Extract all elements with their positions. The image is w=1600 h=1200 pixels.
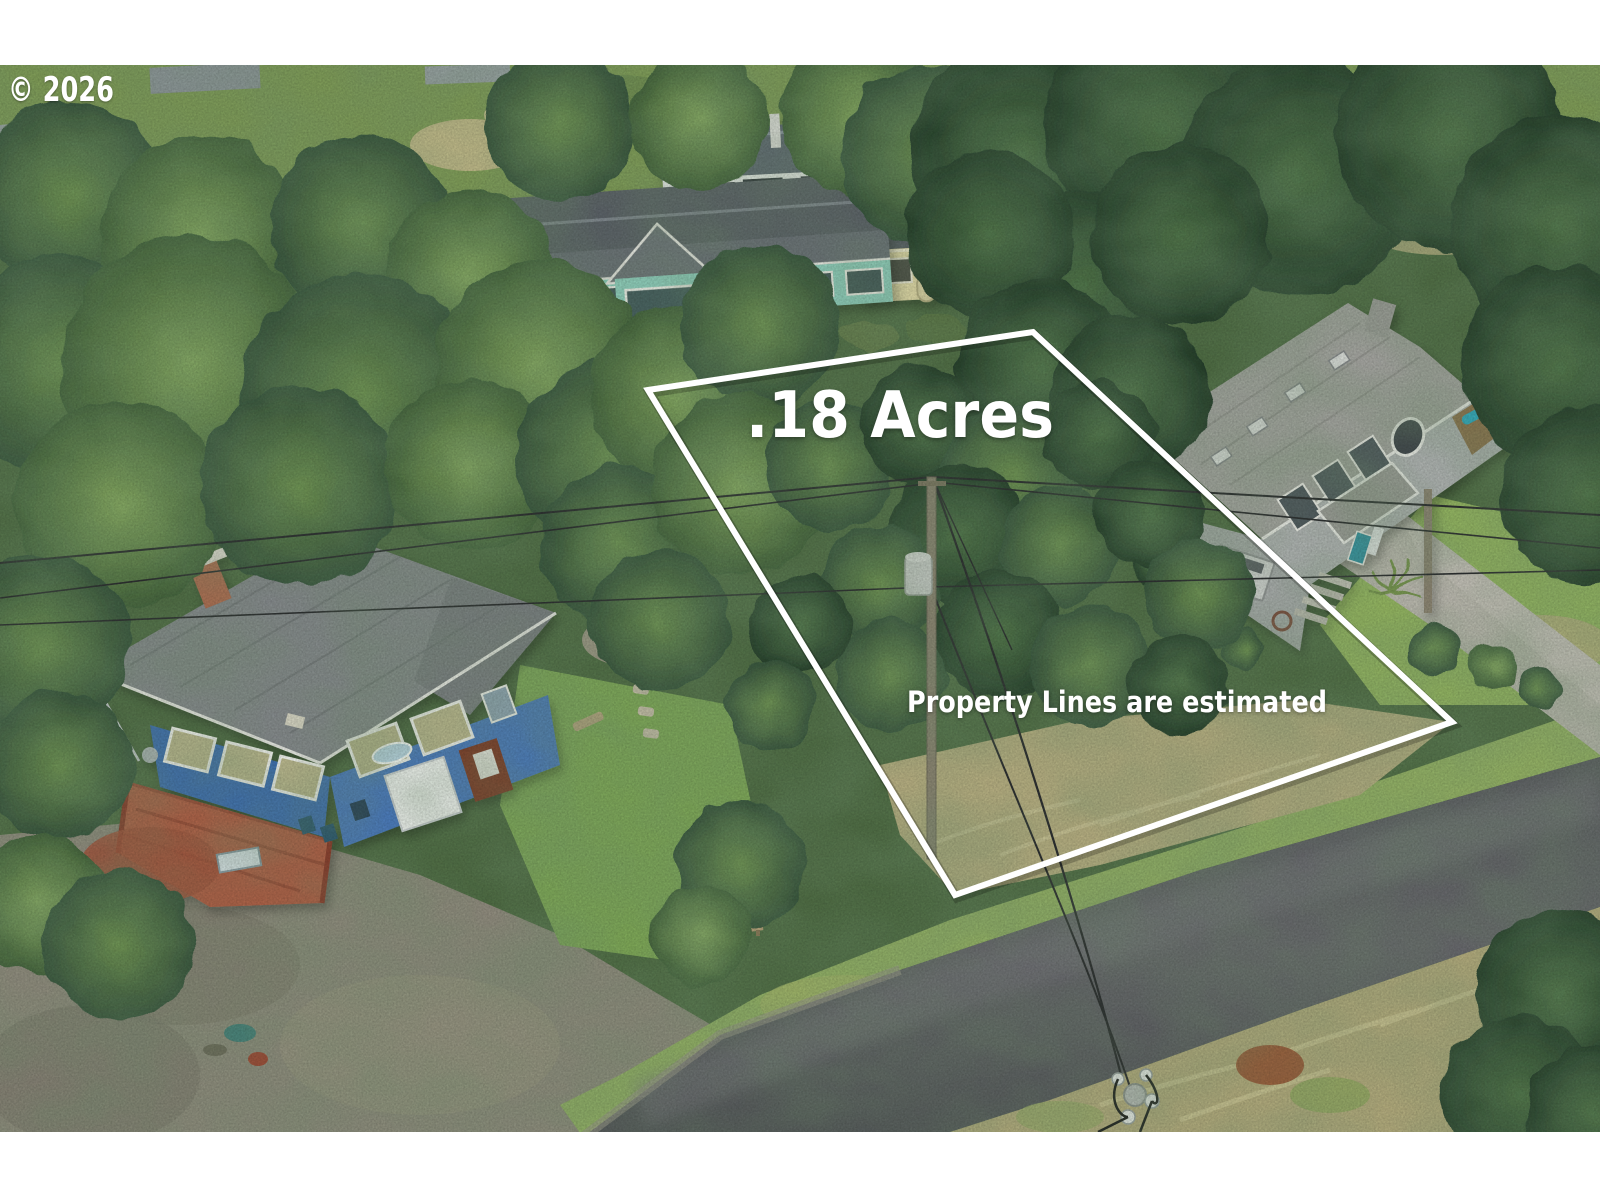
bottom-letterbox-bar — [0, 1132, 1600, 1200]
copyright-watermark: © 2026 — [8, 70, 114, 110]
acreage-label: .18 Acres — [746, 379, 1054, 453]
aerial-photo-scene: © 2026 .18 Acres Property Lines are esti… — [0, 65, 1600, 1132]
property-disclaimer: Property Lines are estimated — [907, 685, 1327, 719]
listing-photo-page: © 2026 .18 Acres Property Lines are esti… — [0, 0, 1600, 1200]
aerial-photo: © 2026 .18 Acres Property Lines are esti… — [0, 65, 1600, 1132]
top-letterbox-bar — [0, 0, 1600, 65]
texture-light-grain — [0, 65, 1600, 1132]
